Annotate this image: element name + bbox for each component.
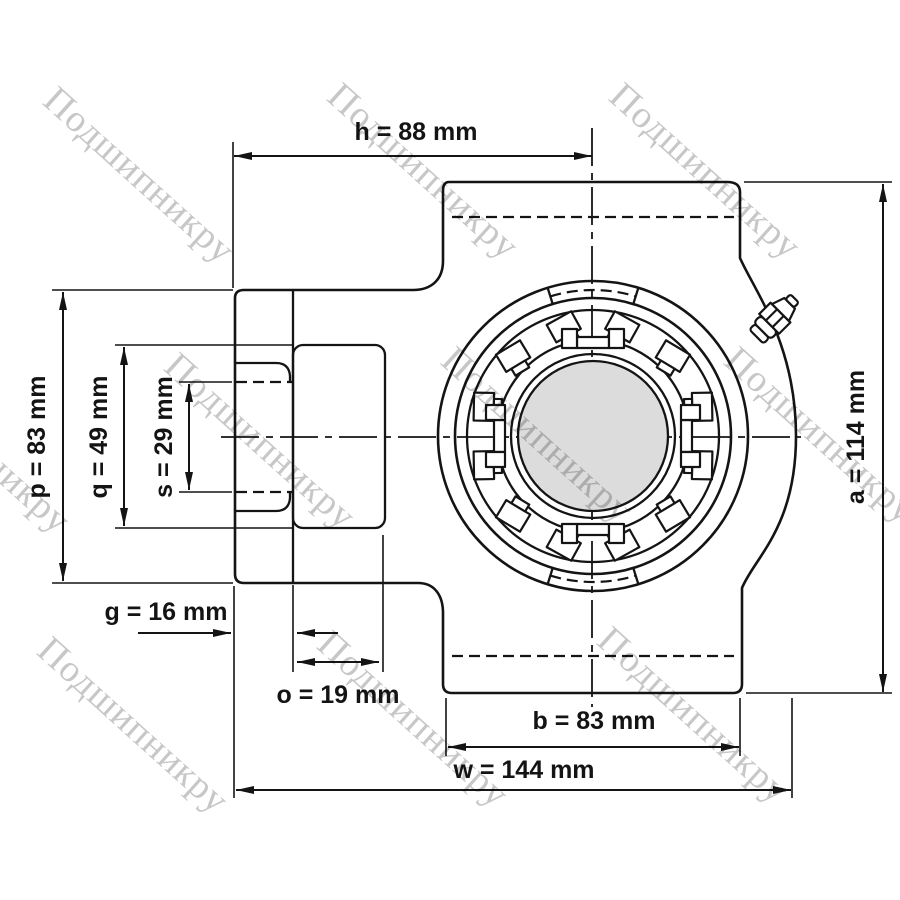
thread-chamfer-bottom bbox=[235, 492, 290, 511]
dim-label-h: h = 88 mm bbox=[355, 118, 478, 146]
bearing-drawing-page: h = 88 mm a = 114 mm p = 83 mm q = 49 mm… bbox=[0, 0, 900, 900]
dim-label-a: a = 114 mm bbox=[842, 370, 870, 504]
dim-label-b: b = 83 mm bbox=[533, 707, 656, 735]
shaft-bore-circle bbox=[518, 361, 668, 511]
centerlines bbox=[221, 128, 801, 707]
dim-label-g: g = 16 mm bbox=[105, 598, 228, 626]
bearing bbox=[438, 281, 748, 591]
dim-label-w: w = 144 mm bbox=[452, 756, 594, 784]
dim-label-p: p = 83 mm bbox=[23, 376, 51, 499]
dim-label-o: o = 19 mm bbox=[277, 681, 400, 709]
grease-fitting bbox=[747, 289, 805, 347]
thread-chamfer-top bbox=[235, 363, 290, 382]
technical-drawing-svg: h = 88 mm a = 114 mm p = 83 mm q = 49 mm… bbox=[0, 0, 900, 900]
dim-label-s: s = 29 mm bbox=[150, 376, 178, 498]
dim-label-q: q = 49 mm bbox=[85, 376, 113, 499]
